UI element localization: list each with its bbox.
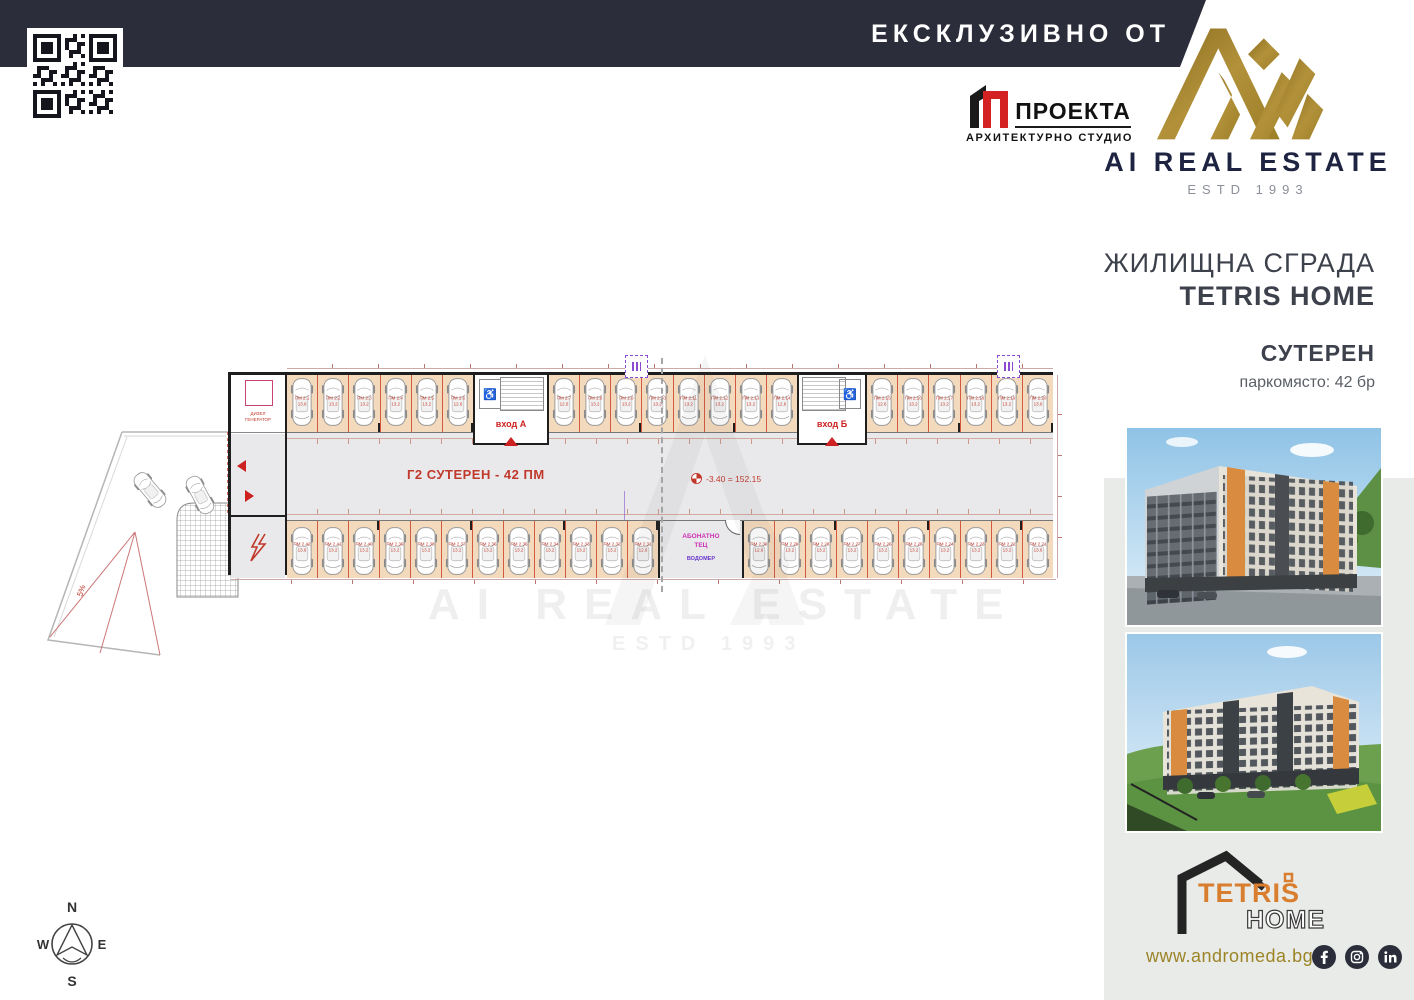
stall-label: ПМ 2.3012.6: [744, 542, 774, 553]
parking-stall: ПМ 2.3713.2: [442, 521, 473, 578]
proekta-building-icon: [968, 82, 1010, 128]
brand-estd: ESTD 1993: [1102, 182, 1394, 197]
generator-equipment: [245, 380, 273, 406]
level-marker: -3.40 = 152.15: [691, 473, 761, 484]
stall-label: ПМ 2.513.2: [412, 396, 442, 407]
building-render-2: [1127, 634, 1381, 831]
entrance-b-label: вход Б: [799, 419, 865, 429]
parking-stall: ПМ 2.2613.2: [868, 521, 899, 578]
corridor: [231, 434, 285, 515]
brand-name: AI REAL ESTATE: [1102, 147, 1394, 178]
qr-code-image: [33, 34, 117, 118]
parking-stall: ПМ 2.3112.6: [628, 521, 658, 578]
electrical-room: [231, 515, 285, 578]
stall-label: ПМ 2.813.2: [580, 396, 610, 407]
ai-real-estate-logo: AI REAL ESTATE ESTD 1993: [1102, 20, 1394, 197]
parking-stall: ПМ 2.4113.2: [318, 521, 349, 578]
parking-stall: ПМ 2.3613.2: [473, 521, 504, 578]
parking-stall: ПМ 2.2013.6: [1023, 375, 1053, 432]
facebook-icon[interactable]: [1312, 945, 1336, 969]
stall-group: ПМ 2.4213.6ПМ 2.4113.2ПМ 2.4013.2ПМ 2.39…: [287, 521, 658, 578]
parking-stall: ПМ 2.313.2: [349, 375, 380, 432]
svg-text:N: N: [67, 899, 77, 915]
parking-stall: ПМ 2.3313.2: [566, 521, 597, 578]
stall-label: ПМ 2.1713.2: [929, 396, 959, 407]
stall-label: ПМ 2.2413.2: [930, 542, 960, 553]
service-column: ДИЗЕЛ ГЕНЕРАТОР: [231, 375, 287, 572]
svg-text:TETRIS: TETRIS: [1198, 878, 1300, 908]
parking-stall: ПМ 2.3513.2: [504, 521, 535, 578]
stall-label: ПМ 2.2513.2: [899, 542, 929, 553]
parking-stall: ПМ 2.913.2: [611, 375, 642, 432]
stall-label: ПМ 2.413.2: [381, 396, 411, 407]
parking-stall: ПМ 2.3913.2: [380, 521, 411, 578]
stall-label: ПМ 2.2613.2: [868, 542, 898, 553]
building-name: TETRIS HOME: [1104, 281, 1375, 312]
stall-label: ПМ 2.1813.2: [961, 396, 991, 407]
driving-aisle: Г2 СУТЕРЕН - 42 ПМ -3.40 = 152.15: [287, 433, 1053, 520]
floor-plan: ДИЗЕЛ ГЕНЕРАТОР ПМ 2.113.6ПМ 2.213.2ПМ 2…: [228, 372, 1053, 575]
parking-stall: ПМ 2.413.2: [381, 375, 412, 432]
lightning-icon: [249, 533, 267, 563]
building-render-1: [1127, 428, 1381, 625]
stall-label: ПМ 2.2313.2: [961, 542, 991, 553]
entrance-a-label: вход А: [475, 419, 547, 429]
svg-text:S: S: [67, 973, 76, 989]
dimension-line: [287, 438, 1053, 444]
stairwell-a: ♿ вход А: [473, 375, 549, 445]
linkedin-icon[interactable]: [1378, 945, 1402, 969]
generator-room: ДИЗЕЛ ГЕНЕРАТОР: [231, 375, 285, 433]
elevator-accessible-icon: ♿: [839, 379, 861, 409]
parking-stall: ПМ 2.2413.2: [930, 521, 961, 578]
svg-text:E: E: [98, 937, 107, 952]
parking-stall: ПМ 2.2313.2: [961, 521, 992, 578]
stall-label: ПМ 2.1113.2: [674, 396, 704, 407]
page: ЕКСКЛУЗИВНО ОТ ПРОЕКТА АРХИТЕКТУРНО СТУД…: [0, 0, 1414, 1000]
ai-logo-mark-icon: [1149, 20, 1347, 140]
parking-stall: ПМ 2.1113.2: [674, 375, 705, 432]
stall-group: ПМ 2.1512.6ПМ 2.1613.2ПМ 2.1713.2ПМ 2.18…: [867, 375, 1053, 432]
tetris-home-logo: TETRIS HOME: [1168, 844, 1346, 940]
stairs: [500, 377, 544, 411]
stall-label: ПМ 2.3713.2: [442, 542, 472, 553]
parking-stall: ПМ 2.712.6: [549, 375, 580, 432]
parking-stall: ПМ 2.2813.2: [806, 521, 837, 578]
stall-label: ПМ 2.213.2: [318, 396, 348, 407]
stall-label: ПМ 2.3313.2: [566, 542, 596, 553]
dimension-line: [231, 579, 1056, 584]
dimension-line: [287, 509, 1053, 515]
stall-label: ПМ 2.3813.2: [411, 542, 441, 553]
stall-group: ПМ 2.3012.6ПМ 2.2913.2ПМ 2.2813.2ПМ 2.27…: [744, 521, 1053, 578]
parking-stall: ПМ 2.612.6: [443, 375, 473, 432]
level-marker-icon: [691, 473, 702, 484]
svg-text:W: W: [37, 937, 50, 952]
dimension-line: [287, 364, 1053, 369]
parking-stall: ПМ 2.2213.2: [992, 521, 1023, 578]
social-icons: [1312, 945, 1402, 969]
parking-stall: ПМ 2.813.2: [580, 375, 611, 432]
parking-stall: ПМ 2.1213.2: [705, 375, 736, 432]
parking-stall: ПМ 2.2513.2: [899, 521, 930, 578]
parking-stall: ПМ 2.3012.6: [744, 521, 775, 578]
parking-stall: ПМ 2.2713.2: [837, 521, 868, 578]
svg-text:HOME: HOME: [1246, 906, 1325, 934]
parking-stall: ПМ 2.1313.2: [736, 375, 767, 432]
stall-label: ПМ 2.1613.2: [898, 396, 928, 407]
entrance-arrow-icon: [504, 437, 518, 446]
parking-stall: ПМ 2.1512.6: [867, 375, 898, 432]
parking-row-bottom: ПМ 2.4213.6ПМ 2.4113.2ПМ 2.4013.2ПМ 2.39…: [287, 520, 1053, 578]
section-marker-icon: [997, 355, 1020, 378]
stall-label: ПМ 2.1512.6: [867, 396, 897, 407]
heating-substation-room: АБОНАТНО ТЕЦ ВОДОМЕР: [658, 521, 744, 578]
parking-row-top: ПМ 2.113.6ПМ 2.213.2ПМ 2.313.2ПМ 2.413.2…: [287, 375, 1053, 433]
stall-label: ПМ 2.1913.2: [992, 396, 1022, 407]
parking-stall: ПМ 2.513.2: [412, 375, 443, 432]
website-link[interactable]: www.andromeda.bg: [1146, 946, 1313, 967]
parking-stall: ПМ 2.2913.2: [775, 521, 806, 578]
instagram-icon[interactable]: [1345, 945, 1369, 969]
generator-room-label: ДИЗЕЛ ГЕНЕРАТОР: [231, 411, 285, 422]
parking-stall: ПМ 2.113.6: [287, 375, 318, 432]
stall-label: ПМ 2.612.6: [443, 396, 473, 407]
stall-label: ПМ 2.113.6: [287, 396, 317, 407]
parking-stall: ПМ 2.1613.2: [898, 375, 929, 432]
stall-label: ПМ 2.4013.2: [349, 542, 379, 553]
watermark-text: AI REAL ESTATE: [428, 580, 1020, 630]
stall-label: ПМ 2.2713.2: [837, 542, 867, 553]
parking-stall: ПМ 2.3813.2: [411, 521, 442, 578]
parking-stall: ПМ 2.1713.2: [929, 375, 960, 432]
tec-room-label: АБОНАТНО: [660, 533, 742, 542]
section-marker-icon: [625, 355, 648, 378]
parking-capacity: паркомясто: 42 бр: [1240, 374, 1375, 392]
parking-stall: ПМ 2.1813.2: [961, 375, 992, 432]
parking-stall: ПМ 2.4013.2: [349, 521, 380, 578]
parking-stall: ПМ 2.3413.2: [535, 521, 566, 578]
qr-code: [27, 28, 123, 134]
entrance-arrow-icon: [825, 437, 839, 446]
stall-group: ПМ 2.113.6ПМ 2.213.2ПМ 2.313.2ПМ 2.413.2…: [287, 375, 473, 432]
stall-label: ПМ 2.3513.2: [504, 542, 534, 553]
stall-label: ПМ 2.313.2: [349, 396, 379, 407]
project-titles: ЖИЛИЩНА СГРАДА TETRIS HOME: [1104, 248, 1375, 312]
floor-label: СУТЕРЕН: [1240, 340, 1375, 367]
stall-label: ПМ 2.2013.6: [1023, 396, 1053, 407]
parking-stall: ПМ 2.1412.6: [767, 375, 797, 432]
section-cut-line: [661, 358, 663, 592]
stairwell-b: ♿ вход Б: [797, 375, 867, 445]
stall-label: ПМ 2.4113.2: [318, 542, 348, 553]
parking-stall: ПМ 2.1013.2: [642, 375, 673, 432]
parking-stall: ПМ 2.2113.6: [1023, 521, 1053, 578]
stall-label: ПМ 2.2113.6: [1023, 542, 1053, 553]
stall-label: ПМ 2.712.6: [549, 396, 579, 407]
water-meter-label: ВОДОМЕР: [660, 556, 742, 562]
direction-arrow-icon: [245, 490, 254, 502]
building-type: ЖИЛИЩНА СГРАДА: [1104, 248, 1375, 279]
stall-label: ПМ 2.4213.6: [287, 542, 317, 553]
elevator-accessible-icon: ♿: [479, 379, 501, 409]
ramp-slope-label: 5%: [75, 584, 87, 598]
direction-arrow-icon: [237, 460, 246, 472]
dimension-line: [1057, 375, 1062, 578]
parking-stall: ПМ 2.3213.2: [597, 521, 628, 578]
stall-label: ПМ 2.913.2: [611, 396, 641, 407]
stall-label: ПМ 2.3213.2: [597, 542, 627, 553]
stall-label: ПМ 2.2913.2: [775, 542, 805, 553]
stall-label: ПМ 2.1412.6: [767, 396, 797, 407]
stall-label: ПМ 2.1213.2: [705, 396, 735, 407]
parking-stall: ПМ 2.213.2: [318, 375, 349, 432]
stall-label: ПМ 2.1313.2: [736, 396, 766, 407]
parking-stall: ПМ 2.1913.2: [992, 375, 1023, 432]
stall-group: ПМ 2.712.6ПМ 2.813.2ПМ 2.913.2ПМ 2.1013.…: [549, 375, 797, 432]
parking-stall: ПМ 2.4213.6: [287, 521, 318, 578]
compass-rose: N E S W: [36, 896, 108, 990]
stall-label: ПМ 2.2213.2: [992, 542, 1022, 553]
floor-info: СУТЕРЕН паркомясто: 42 бр: [1240, 340, 1375, 392]
stall-label: ПМ 2.1013.2: [642, 396, 672, 407]
watermark-estd: ESTD 1993: [612, 633, 805, 656]
stall-label: ПМ 2.3913.2: [380, 542, 410, 553]
site-plan-drawing: 5%: [40, 425, 250, 675]
stall-label: ПМ 2.3413.2: [535, 542, 565, 553]
stall-label: ПМ 2.2813.2: [806, 542, 836, 553]
stall-label: ПМ 2.3613.2: [473, 542, 503, 553]
plan-title: Г2 СУТЕРЕН - 42 ПМ: [407, 467, 545, 482]
stall-label: ПМ 2.3112.6: [628, 542, 658, 553]
